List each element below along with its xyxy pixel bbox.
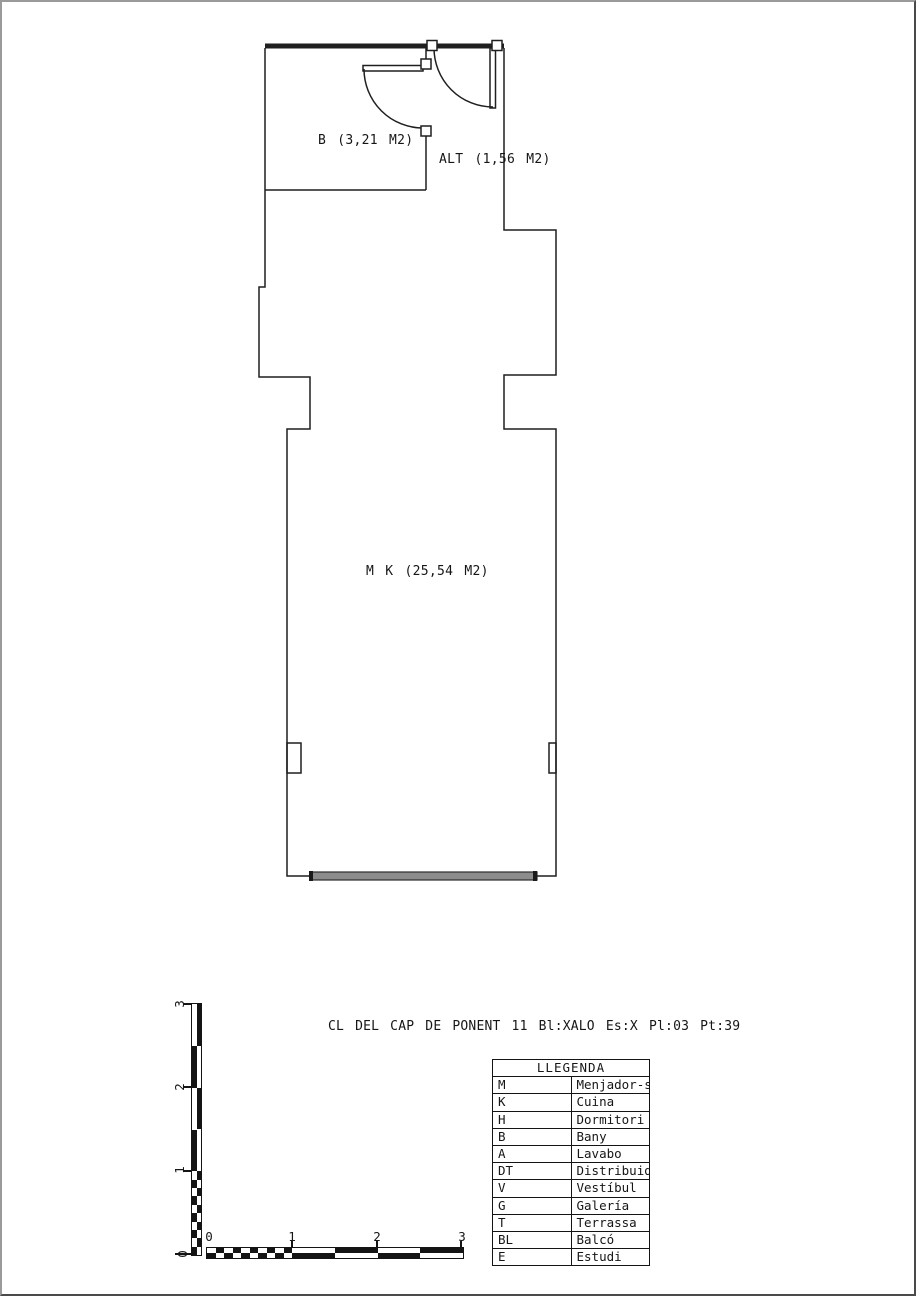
scalebar-v-tick-2 [183,1086,191,1088]
legend-key: G [493,1197,572,1214]
scalebar-h-label-0: 0 [202,1230,216,1244]
window-bar-cap-right [533,871,537,881]
scalebar-cell [275,1253,284,1258]
legend-row: MMenjador-sala [493,1077,650,1094]
address-line: CL DEL CAP DE PONENT 11 Bl:XALO Es:X Pl:… [328,1019,740,1034]
scalebar-cell [216,1248,225,1253]
scalebar-h-label-3: 3 [455,1230,469,1244]
room-label-bany: B (3,21 M2) [318,133,413,148]
legend-row: BLBalcó [493,1231,650,1248]
room-label-menjador-cuina: M K (25,54 M2) [366,564,489,579]
legend-row: GGalería [493,1197,650,1214]
scalebar-horizontal [206,1247,464,1259]
legend-row: ALavabo [493,1145,650,1162]
scalebar-cell [197,1088,202,1130]
room-label-alt: ALT (1,56 M2) [439,152,551,167]
legend-key: A [493,1145,572,1162]
door-b-jamb-bottom [421,126,431,136]
scalebar-h-tick-2 [376,1241,378,1248]
legend-title: LLEGENDA [493,1060,650,1077]
pillar-notch-left [287,743,301,773]
scalebar-cell [378,1253,421,1258]
scalebar-cell [197,1188,202,1196]
legend-key: BL [493,1231,572,1248]
scalebar-cell [192,1130,197,1172]
window-bar [310,872,537,880]
scalebar-vertical [191,1003,202,1256]
scalebar-v-tick-1 [183,1170,191,1172]
scalebar-cell [192,1213,197,1221]
legend-key: T [493,1214,572,1231]
scalebar-cell [241,1253,250,1258]
legend-header-row: LLEGENDA [493,1060,650,1077]
scalebar-cell [192,1180,197,1188]
legend-table: LLEGENDA MMenjador-sala KCuina HDormitor… [492,1059,650,1266]
legend-row: EEstudi [493,1249,650,1266]
door-alt-jamb-left [427,41,437,51]
legend-label: Terrassa [571,1214,650,1231]
scalebar-cell [284,1248,293,1253]
apartment-outline [259,48,556,876]
legend-label: Galería [571,1197,650,1214]
legend-row: TTerrassa [493,1214,650,1231]
legend-row: KCuina [493,1094,650,1111]
scalebar-cell [335,1248,378,1253]
scalebar-cell [233,1248,242,1253]
scalebar-cell [192,1046,197,1088]
legend-key: V [493,1180,572,1197]
scalebar-cell [420,1248,463,1253]
legend-label: Bany [571,1128,650,1145]
legend-label: Menjador-sala [571,1077,650,1094]
legend-key: DT [493,1163,572,1180]
legend-label: Distribuidor [571,1163,650,1180]
scalebar-cell [192,1247,197,1255]
door-b-swing-arc [364,69,423,128]
scalebar-cell [192,1230,197,1238]
legend-key: E [493,1249,572,1266]
legend-label: Dormitori [571,1111,650,1128]
legend-row: DTDistribuidor [493,1163,650,1180]
window-bar-cap-left [309,871,313,881]
scalebar-h-tick-1 [291,1241,293,1248]
scalebar-cell [258,1253,267,1258]
floor-plan-drawing [2,2,916,1296]
legend-label: Vestíbul [571,1180,650,1197]
door-b-jamb-top [421,59,431,69]
pillar-notch-right [549,743,556,773]
legend-key: B [493,1128,572,1145]
scalebar-v-tick-3 [183,1003,191,1005]
scalebar-cell [292,1253,335,1258]
scalebar-cell [207,1253,216,1258]
legend-label: Cuina [571,1094,650,1111]
legend-label: Estudi [571,1249,650,1266]
legend-row: VVestíbul [493,1180,650,1197]
legend-key: K [493,1094,572,1111]
legend-row: HDormitori [493,1111,650,1128]
legend-label: Lavabo [571,1145,650,1162]
scalebar-v-tick-0 [175,1253,191,1255]
legend-row: BBany [493,1128,650,1145]
legend-key: M [493,1077,572,1094]
scalebar-cell [197,1171,202,1179]
scalebar-cell [250,1248,259,1253]
door-alt-jamb-right [492,41,502,51]
door-b-leaf [363,66,423,72]
legend-key: H [493,1111,572,1128]
scalebar-cell [197,1222,202,1230]
scalebar-cell [197,1238,202,1246]
cadastral-plan-page: B (3,21 M2) ALT (1,56 M2) M K (25,54 M2)… [0,0,916,1296]
scalebar-cell [197,1205,202,1213]
legend-label: Balcó [571,1231,650,1248]
door-alt-swing-arc [434,48,493,107]
scalebar-cell [197,1004,202,1046]
scalebar-cell [267,1248,276,1253]
scalebar-h-tick-3 [460,1241,462,1248]
door-alt-leaf [490,48,496,108]
scalebar-cell [192,1196,197,1204]
scalebar-cell [224,1253,233,1258]
